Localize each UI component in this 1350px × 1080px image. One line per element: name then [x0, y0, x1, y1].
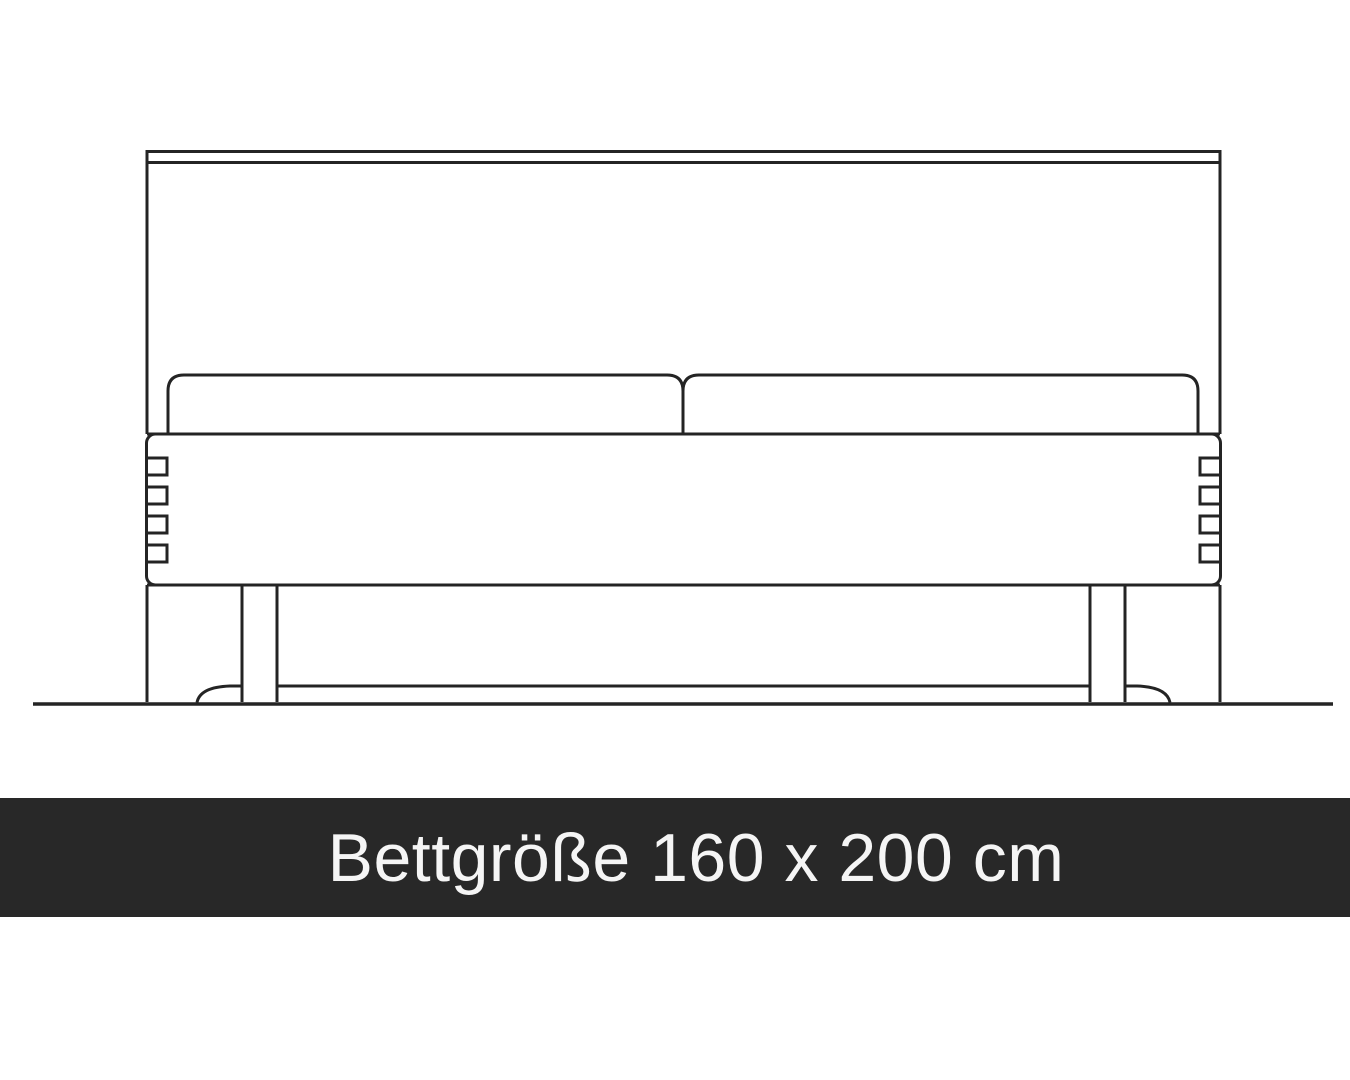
bed-size-label: Bettgröße 160 x 200 cm — [328, 819, 1065, 897]
rear-foot-arc-right — [1125, 686, 1170, 703]
frame-slat-right-1 — [1200, 458, 1221, 475]
frame-slat-right-4 — [1200, 545, 1221, 562]
frame-slat-left-1 — [147, 458, 168, 475]
pillow-left — [168, 375, 683, 434]
frame-slat-left-4 — [147, 545, 168, 562]
frame-slat-left-2 — [147, 487, 168, 504]
bed-frame — [147, 434, 1221, 585]
rear-foot-arc-left — [197, 686, 242, 703]
leg-right — [1090, 585, 1125, 702]
size-banner: Bettgröße 160 x 200 cm — [0, 798, 1350, 917]
bed-illustration-area — [0, 0, 1350, 790]
bed-illustration — [0, 0, 1350, 790]
page: Bettgröße 160 x 200 cm — [0, 0, 1350, 1080]
frame-slat-right-3 — [1200, 516, 1221, 533]
leg-left — [242, 585, 277, 702]
frame-slat-left-3 — [147, 516, 168, 533]
pillow-right — [683, 375, 1198, 434]
frame-slat-right-2 — [1200, 487, 1221, 504]
